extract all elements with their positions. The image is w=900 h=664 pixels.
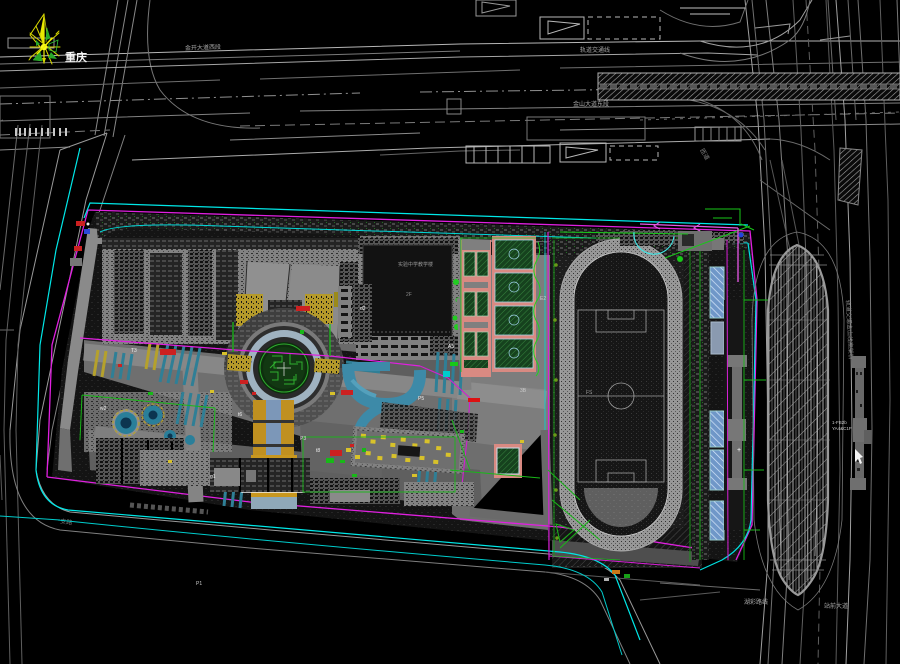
svg-text:w2: w2 [100, 406, 107, 412]
svg-text:轨道交通线: 轨道交通线 [580, 46, 610, 54]
svg-text:P3: P3 [300, 436, 306, 442]
svg-text:t8: t8 [316, 448, 320, 454]
svg-text:FS: FS [586, 390, 593, 396]
svg-text:T3: T3 [131, 348, 137, 354]
svg-text:站前大道: 站前大道 [824, 602, 848, 610]
svg-text:湖彩路线: 湖彩路线 [744, 598, 768, 606]
svg-text:E2: E2 [540, 296, 546, 302]
svg-text:金山大道东段: 金山大道东段 [573, 100, 609, 108]
svg-text:P5: P5 [418, 396, 424, 402]
svg-text:+: + [737, 447, 741, 454]
svg-text:2F: 2F [406, 292, 412, 298]
svg-text:YA4&C1F: YA4&C1F [832, 426, 852, 431]
svg-text:实验中学教学楼: 实验中学教学楼 [398, 261, 433, 268]
svg-text:d2: d2 [360, 306, 366, 312]
svg-text:g1: g1 [210, 474, 216, 480]
svg-text:t6: t6 [238, 412, 242, 418]
svg-text:3B: 3B [520, 388, 527, 394]
svg-text:1-FB2b: 1-FB2b [832, 420, 847, 425]
svg-text:P1: P1 [196, 581, 202, 587]
svg-text:A5: A5 [448, 344, 454, 350]
svg-text:重庆: 重庆 [65, 50, 87, 64]
